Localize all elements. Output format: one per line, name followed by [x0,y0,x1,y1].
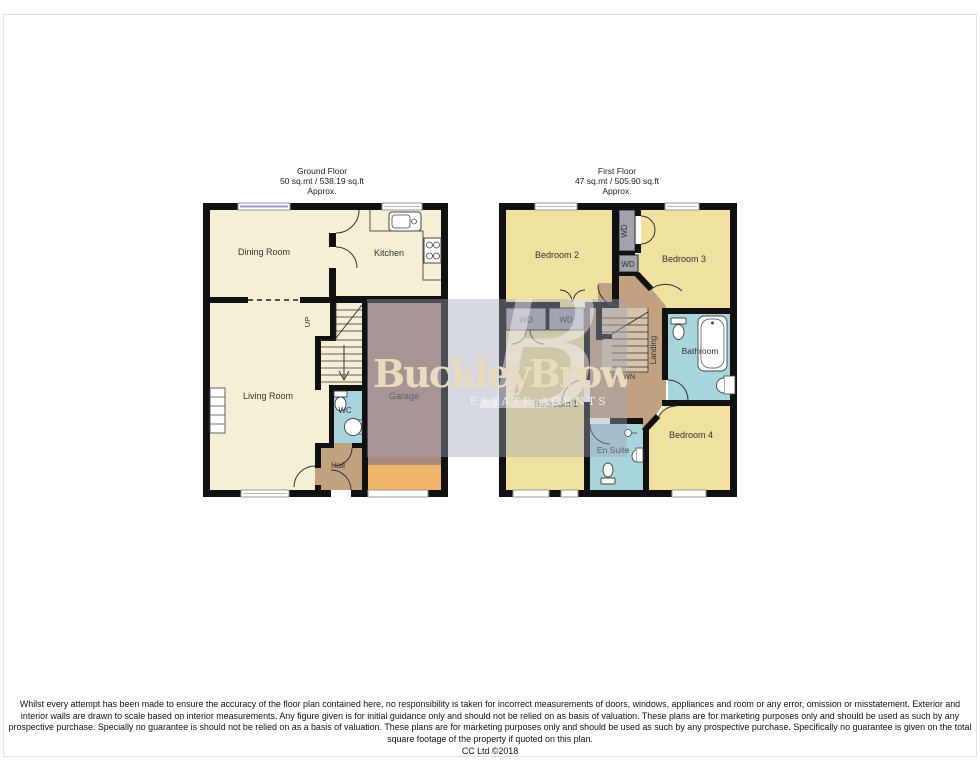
bedroom4-label: Bedroom 4 [669,430,713,440]
wd-right-label: WD [559,316,573,325]
bedroom2-label: Bedroom 2 [535,250,579,260]
bedroom1-label: Bedroom 1 [534,399,578,409]
ground-floor-title-block: Ground Floor 50 sq.mt / 538.19 sq.ft App… [222,166,422,196]
copyright-text: CC Ltd ©2018 [8,746,972,758]
ensuite-label: En Suite [597,445,629,455]
bedroom3-label: Bedroom 3 [662,254,706,264]
wd-left-label: WD [519,316,533,325]
kitchen-label: Kitchen [374,248,404,258]
bedroom1-window-right [561,490,578,497]
wc-sink-icon [345,419,363,436]
kitchen-sink-icon [389,212,421,231]
first-floor-plan: Bedroom 2 Bedroom 3 Bedroom 1 Bedroom 4 … [499,203,737,497]
bathtub-icon [698,316,727,371]
bedroom4-window [672,490,706,497]
dining-room-label: Dining Room [238,247,290,257]
wd-middle-label: WD [621,260,635,269]
living-room-label: Living Room [243,391,293,401]
garage-label: Garage [389,391,419,401]
garage-door-apron [368,465,441,490]
bedroom4-area [649,406,730,490]
ground-floor-plan: Dining Room Kitchen Living Room Garage W… [203,203,448,497]
bathroom-label: Bathroom [682,346,719,356]
ground-floor-title: Ground Floor [222,166,422,176]
up-label: UP [303,317,312,327]
radiator-icon [210,388,225,433]
hall-label: Hall [331,461,345,470]
floorplan-page: { "ground_floor": { "title": "Ground Flo… [0,0,980,769]
first-floor-title-block: First Floor 47 sq.mt / 505.90 sq.ft Appr… [517,166,717,196]
landing-label: Landing [649,336,658,364]
first-floor-title: First Floor [517,166,717,176]
first-floor-area: 47 sq.mt / 505.90 sq.ft [517,176,717,186]
first-floor-approx: Approx. [517,186,717,196]
wd-vertical-label: WD [620,224,629,238]
bedroom1-window-left [513,490,549,497]
footer: Whilst every attempt has been made to en… [8,699,972,758]
garage-door [368,490,428,497]
ground-floor-area: 50 sq.mt / 538.19 sq.ft [222,176,422,186]
ground-floor-approx: Approx. [222,186,422,196]
front-door-opening [331,490,351,497]
floorplans-canvas: Dining Room Kitchen Living Room Garage W… [190,160,760,505]
disclaimer-text: Whilst every attempt has been made to en… [8,699,972,745]
hob-icon [424,238,441,263]
wc-label: WC [338,406,352,415]
down-label: DOWN [613,374,635,381]
